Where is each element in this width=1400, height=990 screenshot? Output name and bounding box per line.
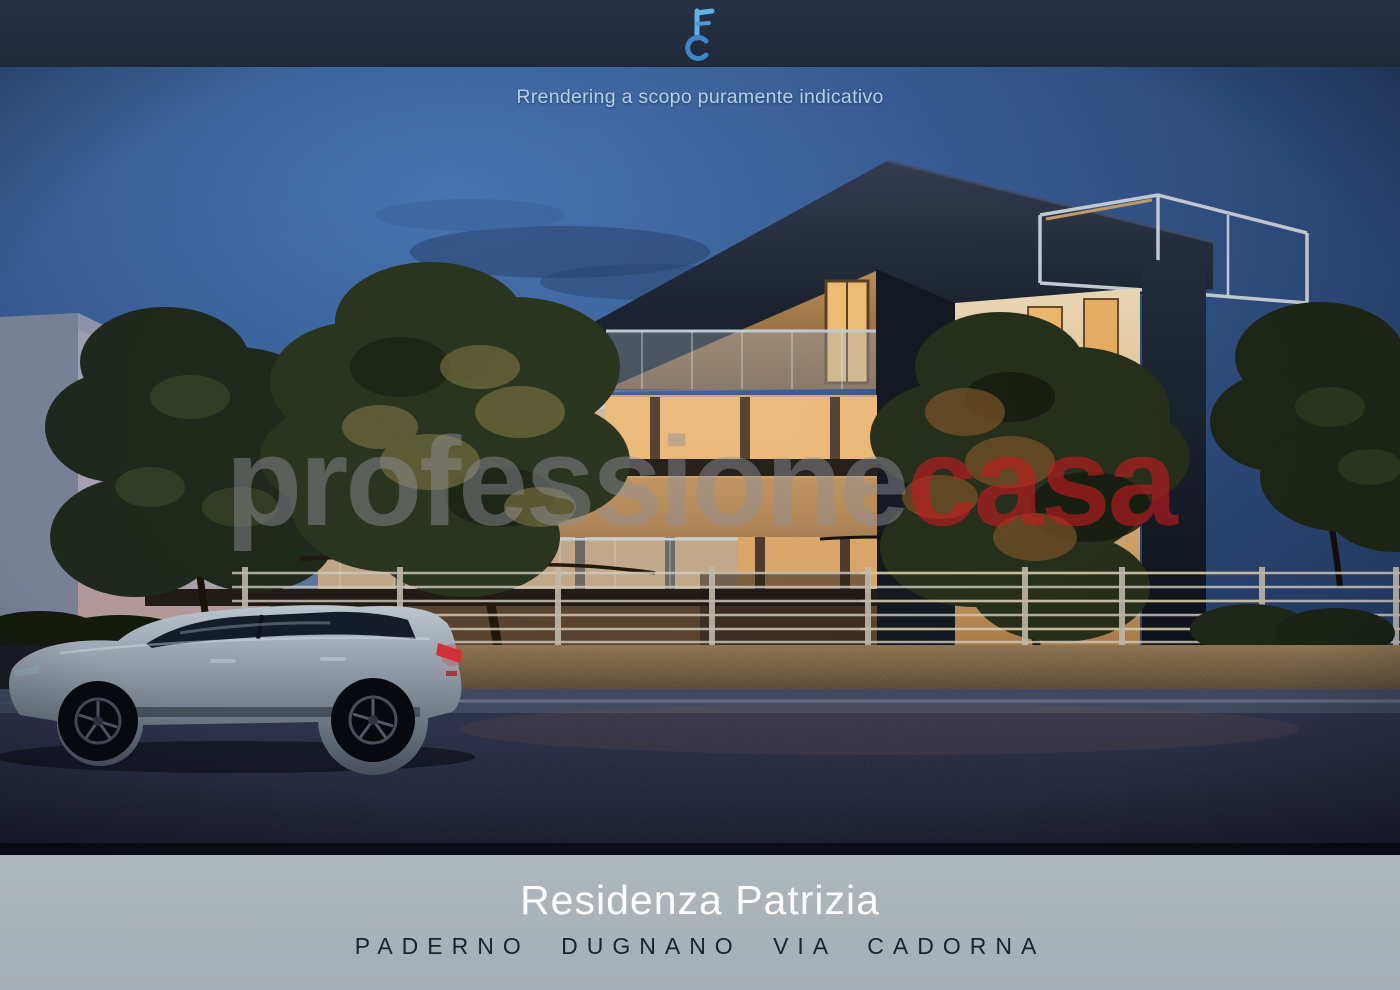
building-render: Rrendering a scopo puramente indicativo … [0,67,1400,855]
flyer-page: Rrendering a scopo puramente indicativo … [0,0,1400,990]
agency-key-logo-icon [680,7,720,61]
footer-banner: Residenza Patrizia PADERNO DUGNANO VIA C… [0,855,1400,990]
project-location: PADERNO DUGNANO VIA CADORNA [355,933,1046,960]
disclaimer-text: Rrendering a scopo puramente indicativo [0,86,1400,109]
vignette-overlay [0,67,1400,855]
project-title: Residenza Patrizia [520,877,880,924]
top-bar [0,0,1400,68]
render-scene [0,67,1400,855]
